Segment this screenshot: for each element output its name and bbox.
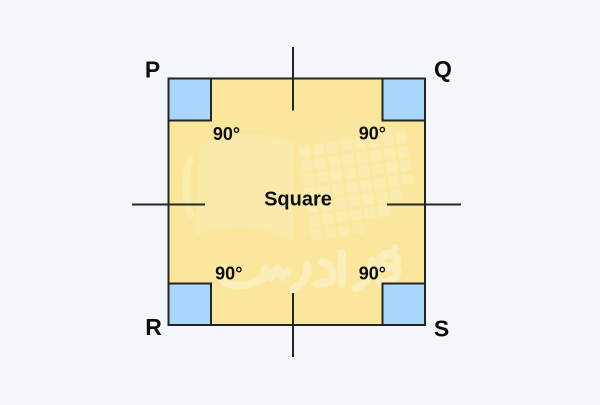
svg-text:P: P bbox=[145, 56, 160, 82]
svg-text:S: S bbox=[434, 316, 449, 342]
svg-text:Q: Q bbox=[434, 56, 452, 82]
svg-text:90°: 90° bbox=[359, 264, 386, 284]
svg-text:90°: 90° bbox=[213, 124, 240, 144]
svg-text:Square: Square bbox=[264, 189, 332, 211]
svg-text:90°: 90° bbox=[359, 124, 386, 144]
svg-text:90°: 90° bbox=[215, 264, 242, 284]
svg-text:R: R bbox=[145, 314, 162, 340]
